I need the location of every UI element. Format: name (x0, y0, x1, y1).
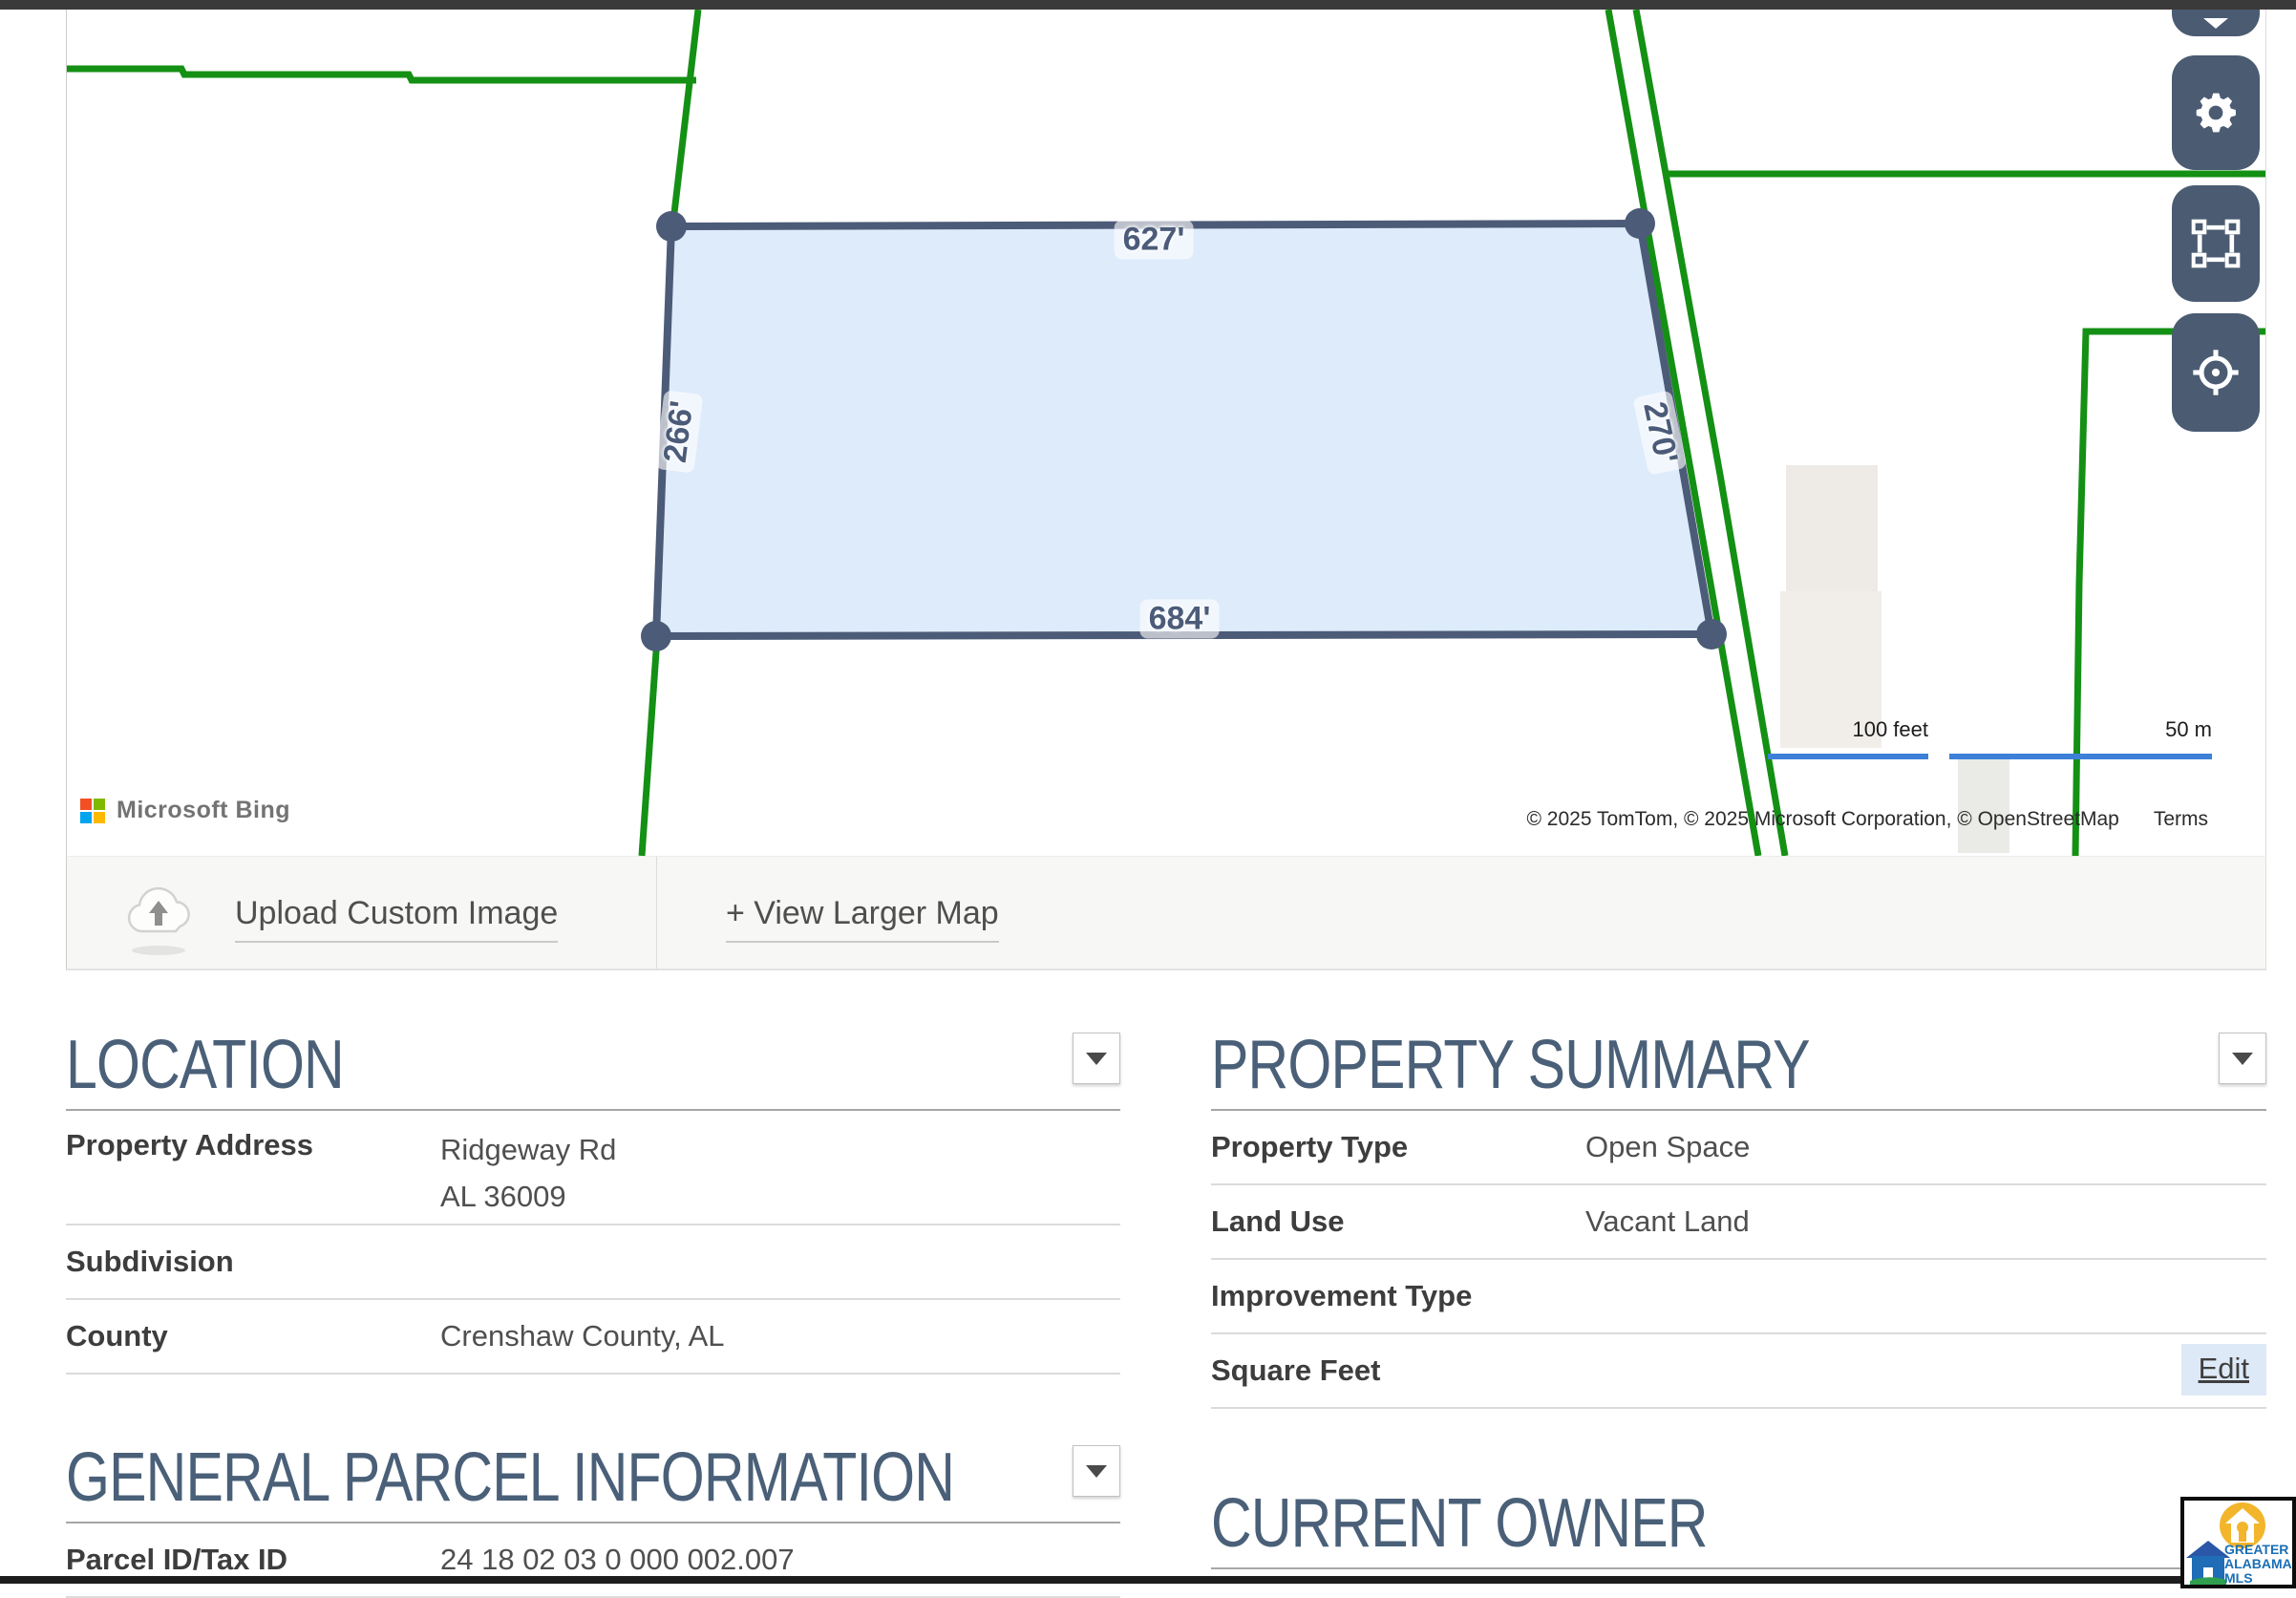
row-subdivision: Subdivision (66, 1225, 1120, 1300)
mls-logo-line3: MLS (2224, 1571, 2253, 1586)
map-copyright: © 2025 TomTom, © 2025 Microsoft Corporat… (1527, 808, 2119, 831)
parcel-map[interactable]: 627' 266' 684' 270' 100 feet 50 m © 2025… (66, 10, 2266, 856)
building-footprint (1958, 757, 2009, 853)
bing-logo-text: Microsoft Bing (117, 797, 290, 824)
row-improvement-type: Improvement Type (1211, 1260, 2266, 1334)
chevron-down-icon (1086, 1053, 1107, 1065)
row-land-use: Land Use Vacant Land (1211, 1185, 2266, 1260)
general-parcel-title: GENERAL PARCEL INFORMATION (66, 1443, 930, 1512)
general-parcel-collapse-button[interactable] (1073, 1445, 1120, 1497)
scale-label-meters: 50 m (1949, 717, 2212, 742)
parcel-polygon[interactable] (656, 224, 1711, 636)
scale-bar-feet (1768, 754, 1928, 759)
property-summary-title: PROPERTY SUMMARY (1211, 1031, 2076, 1099)
edit-square-feet-link[interactable]: Edit (2181, 1344, 2266, 1396)
location-collapse-button[interactable] (1073, 1033, 1120, 1084)
mls-logo-line1: GREATER (2224, 1543, 2288, 1557)
upload-custom-image-link[interactable]: Upload Custom Image (235, 895, 558, 932)
property-summary-collapse-button[interactable] (2219, 1033, 2266, 1084)
divider (656, 857, 657, 969)
row-county: County Crenshaw County, AL (66, 1300, 1120, 1374)
map-locate-button[interactable] (2172, 313, 2260, 432)
row-property-address: Property Address Ridgeway Rd AL 36009 (66, 1111, 1120, 1225)
terms-link[interactable]: Terms (2154, 808, 2208, 831)
selection-frame-icon (2189, 217, 2243, 270)
current-owner-title: CURRENT OWNER (1211, 1489, 2076, 1558)
section-location: LOCATION Property Address Ridgeway Rd AL… (66, 1031, 1120, 1374)
microsoft-bing-logo: Microsoft Bing (80, 797, 290, 824)
map-select-area-button[interactable] (2172, 185, 2260, 302)
mls-logo-line2: ALABAMA (2224, 1557, 2292, 1571)
row-square-feet: Square Feet Edit (1211, 1334, 2266, 1409)
gear-icon (2191, 88, 2241, 138)
measurement-label-top: 627' (1115, 221, 1194, 260)
map-tool-button-partial[interactable] (2172, 10, 2260, 36)
section-general-parcel-information: GENERAL PARCEL INFORMATION Parcel ID/Tax… (66, 1443, 1120, 1598)
map-settings-button[interactable] (2172, 55, 2260, 170)
section-current-owner: CURRENT OWNER (1211, 1489, 2266, 1569)
bottom-dark-strip (0, 1576, 2296, 1584)
cloud-upload-icon (120, 870, 204, 958)
greater-alabama-mls-logo: GREATER ALABAMA MLS (2180, 1497, 2296, 1588)
crosshair-icon (2188, 345, 2243, 400)
property-address-line2: AL 36009 (440, 1173, 616, 1220)
scale-label-feet: 100 feet (1768, 717, 1928, 742)
map-canvas (67, 10, 2266, 856)
location-title: LOCATION (66, 1031, 930, 1099)
scale-bar-meters (1949, 754, 2212, 759)
measurement-label-bottom: 684' (1140, 600, 1220, 639)
microsoft-logo-icon (80, 799, 105, 823)
section-property-summary: PROPERTY SUMMARY Property Type Open Spac… (1211, 1031, 2266, 1409)
chevron-down-icon (2232, 1053, 2253, 1065)
row-property-type: Property Type Open Space (1211, 1111, 2266, 1185)
property-address-line1: Ridgeway Rd (440, 1126, 616, 1173)
chevron-down-icon (1086, 1465, 1107, 1478)
row-parcel-id: Parcel ID/Tax ID 24 18 02 03 0 000 002.0… (66, 1523, 1120, 1598)
building-footprint (1786, 465, 1878, 591)
map-actions-bar: Upload Custom Image + View Larger Map (66, 856, 2266, 970)
top-dark-bar (0, 0, 2296, 10)
view-larger-map-link[interactable]: + View Larger Map (726, 895, 999, 932)
chevron-down-icon (2203, 18, 2228, 29)
